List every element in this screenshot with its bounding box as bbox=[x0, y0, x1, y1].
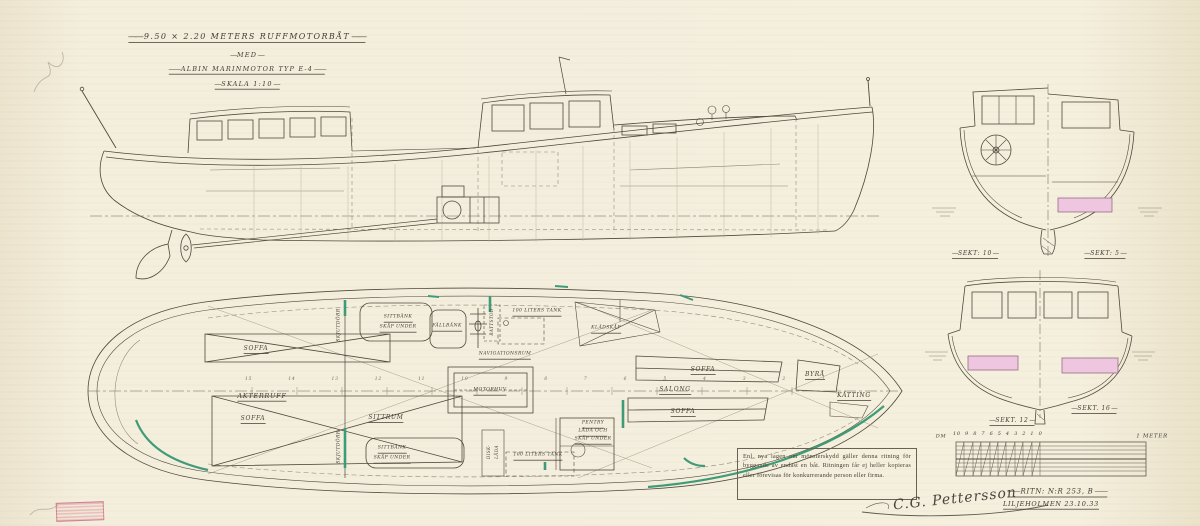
label-soffa-salong-bottom: SOFFA bbox=[671, 409, 696, 417]
aft-berths bbox=[115, 334, 462, 466]
drawing-canvas bbox=[0, 0, 1200, 526]
title-line-3: ALBIN MARINMOTOR TYP E-4 bbox=[169, 66, 325, 75]
berth-cushion-sekt16 bbox=[1062, 358, 1118, 373]
steering-wheel-section bbox=[981, 135, 1011, 165]
label-pentry: PENTRY bbox=[582, 422, 604, 429]
label-sittbank-top-2: SKÅP UNDER bbox=[380, 326, 417, 333]
label-skjutdorr-bottom: SKJUTDÖRR bbox=[338, 430, 343, 463]
title-line-4: SKALA 1:10 bbox=[215, 81, 280, 90]
label-rattstod: RATTSTOD bbox=[490, 308, 494, 335]
place-and-date: LILJEHOLMEN 23.10.33 bbox=[1003, 501, 1099, 510]
label-skjutdorr-top: SKJUTDÖRR bbox=[338, 308, 343, 341]
berth-cushion-sekt5 bbox=[1058, 198, 1112, 212]
title-line-2: MED bbox=[230, 52, 263, 59]
label-sekt-12: SEKT. 12 bbox=[990, 418, 1035, 426]
legal-notice-box: Enl. nya lagen om mönsterskydd gäller de… bbox=[737, 448, 917, 500]
section-drawing-lower bbox=[925, 270, 1155, 424]
station-numbers: 15 14 13 12 11 10 9 8 7 6 5 4 3 2 1 bbox=[245, 378, 826, 383]
stern-flagstaff bbox=[80, 87, 116, 148]
label-sittrum: SITTRUM bbox=[368, 415, 403, 423]
label-tank-top: 100 LITERS TANK bbox=[512, 310, 561, 317]
label-pentry-3: SKÅP UNDER bbox=[575, 438, 612, 445]
title-line-1: 9.50 × 2.20 METERS RUFFMOTORBÅT bbox=[128, 33, 365, 43]
pencil-marks bbox=[30, 52, 63, 515]
label-kladskap: KLÄDSKÅP bbox=[591, 327, 621, 334]
berth-cushion-sekt12 bbox=[968, 356, 1018, 370]
profile-view-drawing bbox=[80, 57, 882, 279]
label-sittbank-top: SITTBÄNK bbox=[384, 316, 413, 323]
label-fallbank: FÄLLBÄNK bbox=[432, 325, 462, 332]
label-katting: KÄTTING bbox=[837, 393, 871, 401]
label-akterruff: AKTERRUFF bbox=[237, 393, 286, 402]
label-soffa-salong-top: SOFFA bbox=[691, 367, 716, 375]
label-salong: SALONG bbox=[659, 387, 691, 395]
label-sittbank-bottom: SITTBÄNK bbox=[378, 447, 407, 454]
scale-meter-label: 1 METER bbox=[1136, 434, 1168, 440]
section-drawing-upper bbox=[932, 84, 1162, 256]
drawing-number: RITN: N:r 253, B bbox=[1007, 489, 1107, 498]
label-sittbank-bottom-2: SKÅP UNDER bbox=[374, 457, 411, 464]
label-soffa-aft-bottom: SOFFA bbox=[241, 416, 266, 424]
label-sekt-10: SEKT: 10 bbox=[952, 251, 998, 259]
label-soffa-aft-top: SOFFA bbox=[244, 346, 269, 354]
label-navigationsrum: NAVIGATIONSRUM bbox=[479, 353, 531, 360]
label-disklada-2: LÅDA bbox=[495, 445, 499, 459]
diagonal-scale-bar bbox=[956, 442, 1146, 476]
rudder bbox=[136, 230, 172, 279]
blueprint-sheet: 9.50 × 2.20 METERS RUFFMOTORBÅT MED ALBI… bbox=[0, 0, 1200, 526]
label-sekt-16: SEKT. 16 bbox=[1072, 406, 1117, 414]
label-tank-bottom: 100 LITERS TANK bbox=[513, 454, 562, 461]
label-disklada: DISK- bbox=[487, 445, 491, 459]
label-pentry-2: LÅDA OCH bbox=[578, 430, 607, 437]
engine bbox=[437, 186, 499, 223]
archive-stamp bbox=[56, 501, 105, 522]
propeller bbox=[181, 234, 192, 262]
label-motorhuv: MOTORHUV bbox=[473, 389, 506, 396]
bow-staff bbox=[867, 78, 871, 107]
scale-tick-numbers: 10 9 8 7 6 5 4 3 2 1 0 bbox=[953, 432, 1042, 437]
scale-unit-label: DM bbox=[936, 435, 947, 440]
label-sekt-5: SEKT: 5 bbox=[1084, 251, 1125, 259]
